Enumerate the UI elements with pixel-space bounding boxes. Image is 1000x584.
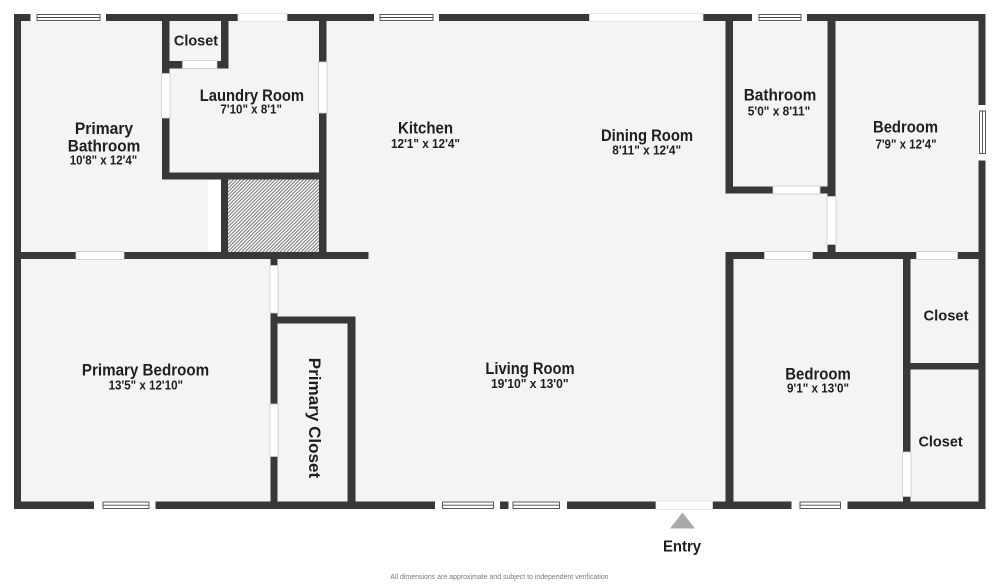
svg-text:All dimensions are approximate: All dimensions are approximate and subje… — [390, 572, 608, 581]
svg-text:Bathroom: Bathroom — [744, 85, 817, 104]
svg-text:Primary: Primary — [75, 119, 134, 138]
svg-text:7'9" x 12'4": 7'9" x 12'4" — [875, 136, 936, 151]
svg-text:Kitchen: Kitchen — [398, 118, 453, 137]
svg-text:Bedroom: Bedroom — [873, 117, 938, 136]
svg-text:7'10" x 8'1": 7'10" x 8'1" — [220, 101, 282, 116]
svg-text:8'11" x 12'4": 8'11" x 12'4" — [612, 143, 681, 158]
svg-text:9'1" x 13'0": 9'1" x 13'0" — [787, 381, 849, 396]
svg-text:19'10" x 13'0": 19'10" x 13'0" — [491, 376, 569, 391]
svg-text:Closet: Closet — [924, 309, 969, 325]
svg-text:5'0" x 8'11": 5'0" x 8'11" — [748, 103, 810, 118]
svg-text:10'8" x 12'4": 10'8" x 12'4" — [70, 153, 138, 168]
svg-text:13'5" x 12'10": 13'5" x 12'10" — [109, 377, 183, 392]
svg-text:Primary Closet: Primary Closet — [305, 358, 324, 479]
svg-text:12'1" x 12'4": 12'1" x 12'4" — [391, 136, 460, 151]
svg-text:Entry: Entry — [663, 539, 701, 556]
svg-text:Closet: Closet — [174, 34, 218, 50]
svg-text:Closet: Closet — [918, 435, 962, 451]
